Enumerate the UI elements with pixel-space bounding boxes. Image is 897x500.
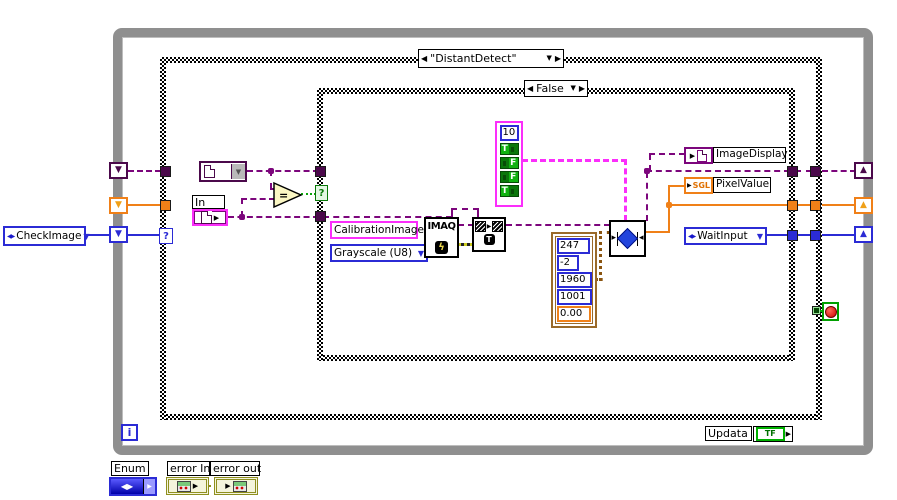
enum-terminal[interactable]: ◀▶ ▶: [109, 477, 157, 496]
calibration-image-text: CalibrationImage: [334, 224, 424, 236]
cluster-number[interactable]: 10: [500, 125, 519, 141]
wire-image-r2: [822, 170, 856, 172]
shift-register-blue-left[interactable]: ▼: [109, 226, 128, 243]
error-out-label: error out: [210, 461, 260, 476]
param-value[interactable]: 0.00: [557, 306, 591, 322]
image-display-label: ImageDisplay: [713, 147, 786, 163]
wire-imagedisplay-h: [649, 153, 685, 155]
wait-input-text: WaitInput: [697, 230, 747, 242]
wire-tf-cluster-h: [522, 159, 627, 162]
enum-label: Enum: [111, 461, 149, 476]
tunnel-blue-outer-right[interactable]: [810, 230, 821, 241]
wire-image-left: [128, 170, 161, 172]
calibration-image-constant[interactable]: CalibrationImage: [330, 221, 418, 239]
tunnel-image-inner-left2[interactable]: [315, 211, 326, 222]
wire-bool-selector: [301, 193, 316, 195]
bool-true-cell[interactable]: T: [501, 186, 510, 196]
tunnel-image-left[interactable]: [160, 166, 171, 177]
light-meter-node[interactable]: ▸ ◂: [609, 220, 646, 257]
question-icon: ?: [319, 188, 325, 199]
wire-orange-r2: [822, 204, 856, 206]
wire-enum-left-b: [128, 234, 161, 236]
wire-image-out-v: [646, 172, 648, 221]
arrow-right-icon: ▶: [225, 482, 230, 490]
shift-register-image-left[interactable]: ▼: [109, 162, 128, 179]
tunnel-image-inner-right[interactable]: [787, 166, 798, 177]
browse-cell[interactable]: ▼: [231, 164, 245, 179]
enum-mini-cell: ▶: [143, 479, 155, 494]
dropdown-icon[interactable]: ▼: [757, 232, 763, 241]
wait-input-enum[interactable]: ◀▶ WaitInput ▼: [684, 227, 767, 245]
shift-up-icon: ▲: [860, 201, 867, 210]
tunnel-orange-left[interactable]: [160, 200, 171, 211]
params-cluster-constant[interactable]: 247 -2 1960 1001 0.00: [551, 232, 597, 328]
wire-junction: [644, 168, 650, 174]
shift-down-icon: ▼: [115, 230, 122, 239]
wire-path-const: [247, 170, 319, 172]
file-path-constant[interactable]: ▼: [199, 161, 247, 182]
case-next-icon[interactable]: ▶: [555, 55, 561, 63]
equals-glyph: =: [279, 189, 288, 202]
image-icon: [201, 211, 212, 224]
wire-params-v: [599, 231, 602, 281]
case-outer-border-bottom: [160, 414, 822, 420]
tf-cluster-constant[interactable]: 10 T F F T: [495, 121, 523, 207]
case-inner-border-right: [789, 88, 795, 361]
case-inner-selector-terminal[interactable]: ?: [315, 185, 328, 201]
shift-up-icon: ▲: [860, 166, 867, 175]
bool-off-cell: [509, 144, 518, 154]
case-inner-border-bottom: [317, 355, 795, 361]
image-src-icon: [475, 221, 486, 232]
wire-image-top: [451, 208, 479, 210]
case-next-icon[interactable]: ▶: [579, 85, 585, 93]
dropdown-icon[interactable]: ▼: [83, 232, 89, 241]
tf-frame: TF: [756, 427, 785, 441]
wire-error-left: [128, 204, 161, 206]
bool-off-cell: [509, 186, 518, 196]
wire-in-branch-h: [241, 198, 275, 200]
case-dropdown-icon[interactable]: ▼: [570, 85, 575, 92]
arrow-right-icon: ▶: [487, 223, 492, 230]
wire-blue-r2: [822, 234, 856, 236]
stop-terminal[interactable]: [822, 302, 839, 321]
shift-register-orange-right[interactable]: ▲: [854, 197, 873, 214]
tunnel-image-inner-left[interactable]: [315, 166, 326, 177]
error-out-terminal[interactable]: ▶: [214, 477, 258, 495]
iteration-i: i: [128, 426, 132, 439]
imaq-create-node[interactable]: IMAQ ϟ: [424, 217, 459, 258]
bool-off-cell: [501, 172, 510, 182]
shift-down-icon: ▼: [115, 201, 122, 210]
case-dropdown-icon[interactable]: ▼: [546, 55, 551, 62]
image-dst-icon: [492, 221, 503, 232]
case-prev-icon[interactable]: ◀: [421, 55, 427, 63]
bool-false-cell[interactable]: F: [509, 172, 518, 182]
tunnel-image-outer-right[interactable]: [810, 166, 821, 177]
bool-constant[interactable]: T: [500, 185, 519, 197]
arrow-right-icon: ▶: [687, 182, 692, 189]
shift-register-image-right[interactable]: ▲: [854, 162, 873, 179]
check-image-label: CheckImage: [16, 230, 81, 242]
pixel-value-label: PixelValue: [713, 177, 771, 193]
case-prev-icon[interactable]: ◀: [527, 85, 533, 93]
error-in-label: error In: [167, 461, 210, 476]
wire-value-out-v: [668, 185, 670, 233]
arrow-right-icon: ▶: [193, 482, 198, 490]
wire-junction: [268, 168, 274, 174]
iteration-terminal[interactable]: i: [121, 424, 138, 441]
tunnel-orange-inner-right[interactable]: [787, 200, 798, 211]
tunnel-orange-outer-right[interactable]: [810, 200, 821, 211]
bool-off-cell: [501, 158, 510, 168]
bool-constant[interactable]: F: [500, 157, 519, 169]
case-inner-name[interactable]: False: [536, 83, 567, 94]
shift-register-blue-right[interactable]: ▲: [854, 226, 873, 243]
updata-label: Updata: [705, 426, 752, 441]
shift-down-icon: ▼: [115, 166, 122, 175]
arrow-in-left-icon: ▸: [611, 234, 616, 243]
question-icon: ?: [163, 231, 169, 242]
block-diagram: ◀ "DistantDetect" ▼ ▶ ◀ False ▼ ▶: [0, 0, 897, 500]
in-label: In: [192, 195, 225, 209]
tunnel-blue-inner-right[interactable]: [787, 230, 798, 241]
case-outer-selector-label[interactable]: ◀ "DistantDetect" ▼ ▶: [418, 49, 564, 68]
copy-badge-icon: T: [484, 234, 495, 245]
arrow-right-icon: ▶: [214, 214, 219, 222]
image-display-terminal[interactable]: ▶: [684, 147, 713, 164]
error-in-terminal[interactable]: ▶: [166, 477, 209, 495]
updata-boolean-terminal[interactable]: TF ▶: [753, 426, 793, 442]
shift-register-orange-left[interactable]: ▼: [109, 197, 128, 214]
case-outer-selector-terminal[interactable]: ?: [159, 228, 173, 244]
grayscale-enum[interactable]: Grayscale (U8) ▼: [330, 244, 428, 262]
param-value[interactable]: 1001: [557, 289, 592, 305]
imaq-text: IMAQ: [428, 221, 456, 232]
case-inner-border-left: [317, 88, 323, 361]
bool-constant[interactable]: F: [500, 171, 519, 183]
stop-icon: [825, 306, 837, 318]
in-image-control[interactable]: ▶: [192, 209, 228, 226]
diamond-icon: [617, 228, 638, 249]
dropdown-icon: ▼: [236, 168, 241, 176]
pixel-value-terminal[interactable]: ▶ SGL: [684, 177, 713, 194]
case-outer-name[interactable]: "DistantDetect": [430, 53, 543, 64]
equals-node[interactable]: =: [273, 181, 303, 209]
enum-arrows-icon: ◀▶: [111, 482, 143, 491]
param-value[interactable]: 1960: [557, 272, 592, 288]
enum-icon: ◀▶: [7, 233, 14, 240]
param-value[interactable]: 247: [557, 238, 590, 254]
bool-true-cell[interactable]: T: [501, 144, 510, 154]
bool-false-cell[interactable]: F: [509, 158, 518, 168]
arrow-right-icon: ▶: [786, 430, 791, 438]
wire-copy-diamond: [506, 224, 610, 226]
case-inner-selector-label[interactable]: ◀ False ▼ ▶: [524, 80, 588, 97]
arrow-right-icon: ▶: [690, 152, 695, 160]
shift-up-icon: ▲: [860, 230, 867, 239]
lightning-icon: ϟ: [435, 241, 448, 254]
wire-image-out-h: [646, 170, 790, 172]
wire-junction: [239, 214, 245, 220]
arrow-right-icon: ▶: [147, 483, 152, 490]
wire-tf-cluster-v: [624, 159, 627, 221]
error-cluster-icon: [233, 481, 247, 492]
image-copy-node[interactable]: ▶ T: [472, 217, 506, 252]
grayscale-text: Grayscale (U8): [334, 247, 412, 259]
wire-junction: [666, 202, 672, 208]
image-icon: [697, 150, 707, 162]
sgl-type-text: SGL: [693, 181, 710, 190]
tf-text: TF: [765, 430, 776, 438]
bool-constant[interactable]: T: [500, 143, 519, 155]
wire-value-out-a: [645, 231, 670, 233]
arrow-in-right-icon: ◂: [639, 234, 644, 243]
wire-value-out-h: [668, 204, 790, 206]
enum-icon: ◀▶: [688, 233, 695, 240]
error-cluster-icon: [177, 481, 191, 492]
check-image-enum[interactable]: ◀▶ CheckImage ▼: [3, 226, 86, 246]
param-value[interactable]: -2: [557, 255, 579, 271]
file-icon: [204, 165, 215, 178]
